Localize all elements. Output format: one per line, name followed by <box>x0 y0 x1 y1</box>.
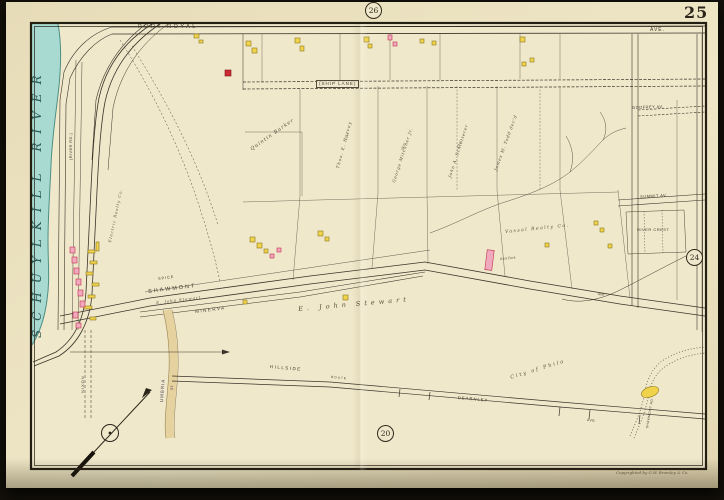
street-label-umbria-st: ST <box>171 386 175 391</box>
plate-number: 25 <box>684 3 708 22</box>
adjoining-plate-right: 24 <box>686 249 703 266</box>
adjoining-plate-bottom: 20 <box>377 425 394 442</box>
street-label-nixon: NIXON <box>81 375 85 393</box>
street-label-port-royal: PORT ROYAL <box>138 25 198 31</box>
map-drawing <box>0 0 724 500</box>
adjoining-plate-bottom-number: 20 <box>381 429 391 438</box>
area-label-river-crest: RIVER CREST <box>637 228 669 232</box>
map-interior <box>32 24 705 468</box>
river-name-label: SCHUYLKILL RIVER <box>30 66 44 338</box>
street-label-river-rd: (RIVER RD.) <box>70 133 74 160</box>
building-red <box>225 70 231 76</box>
street-label-shawmont-ave-small: AVE <box>598 293 605 297</box>
street-label-ship-lane: (SHIP LANE) <box>316 80 359 88</box>
street-label-port-royal-ave: AVE. <box>650 28 665 33</box>
copyright-line: Copyrighted by G.W. Bromley & Co. <box>616 470 689 475</box>
adjoining-plate-top-number: 26 <box>369 6 379 15</box>
street-label-dearnley-ave: AVE <box>587 419 596 423</box>
adjoining-plate-top: 26 <box>365 2 382 19</box>
atlas-page-scan: 25 26 24 20 SCHUYLKILL RIVER PORT ROYAL … <box>0 0 724 500</box>
adjoining-plate-right-number: 24 <box>690 253 700 262</box>
